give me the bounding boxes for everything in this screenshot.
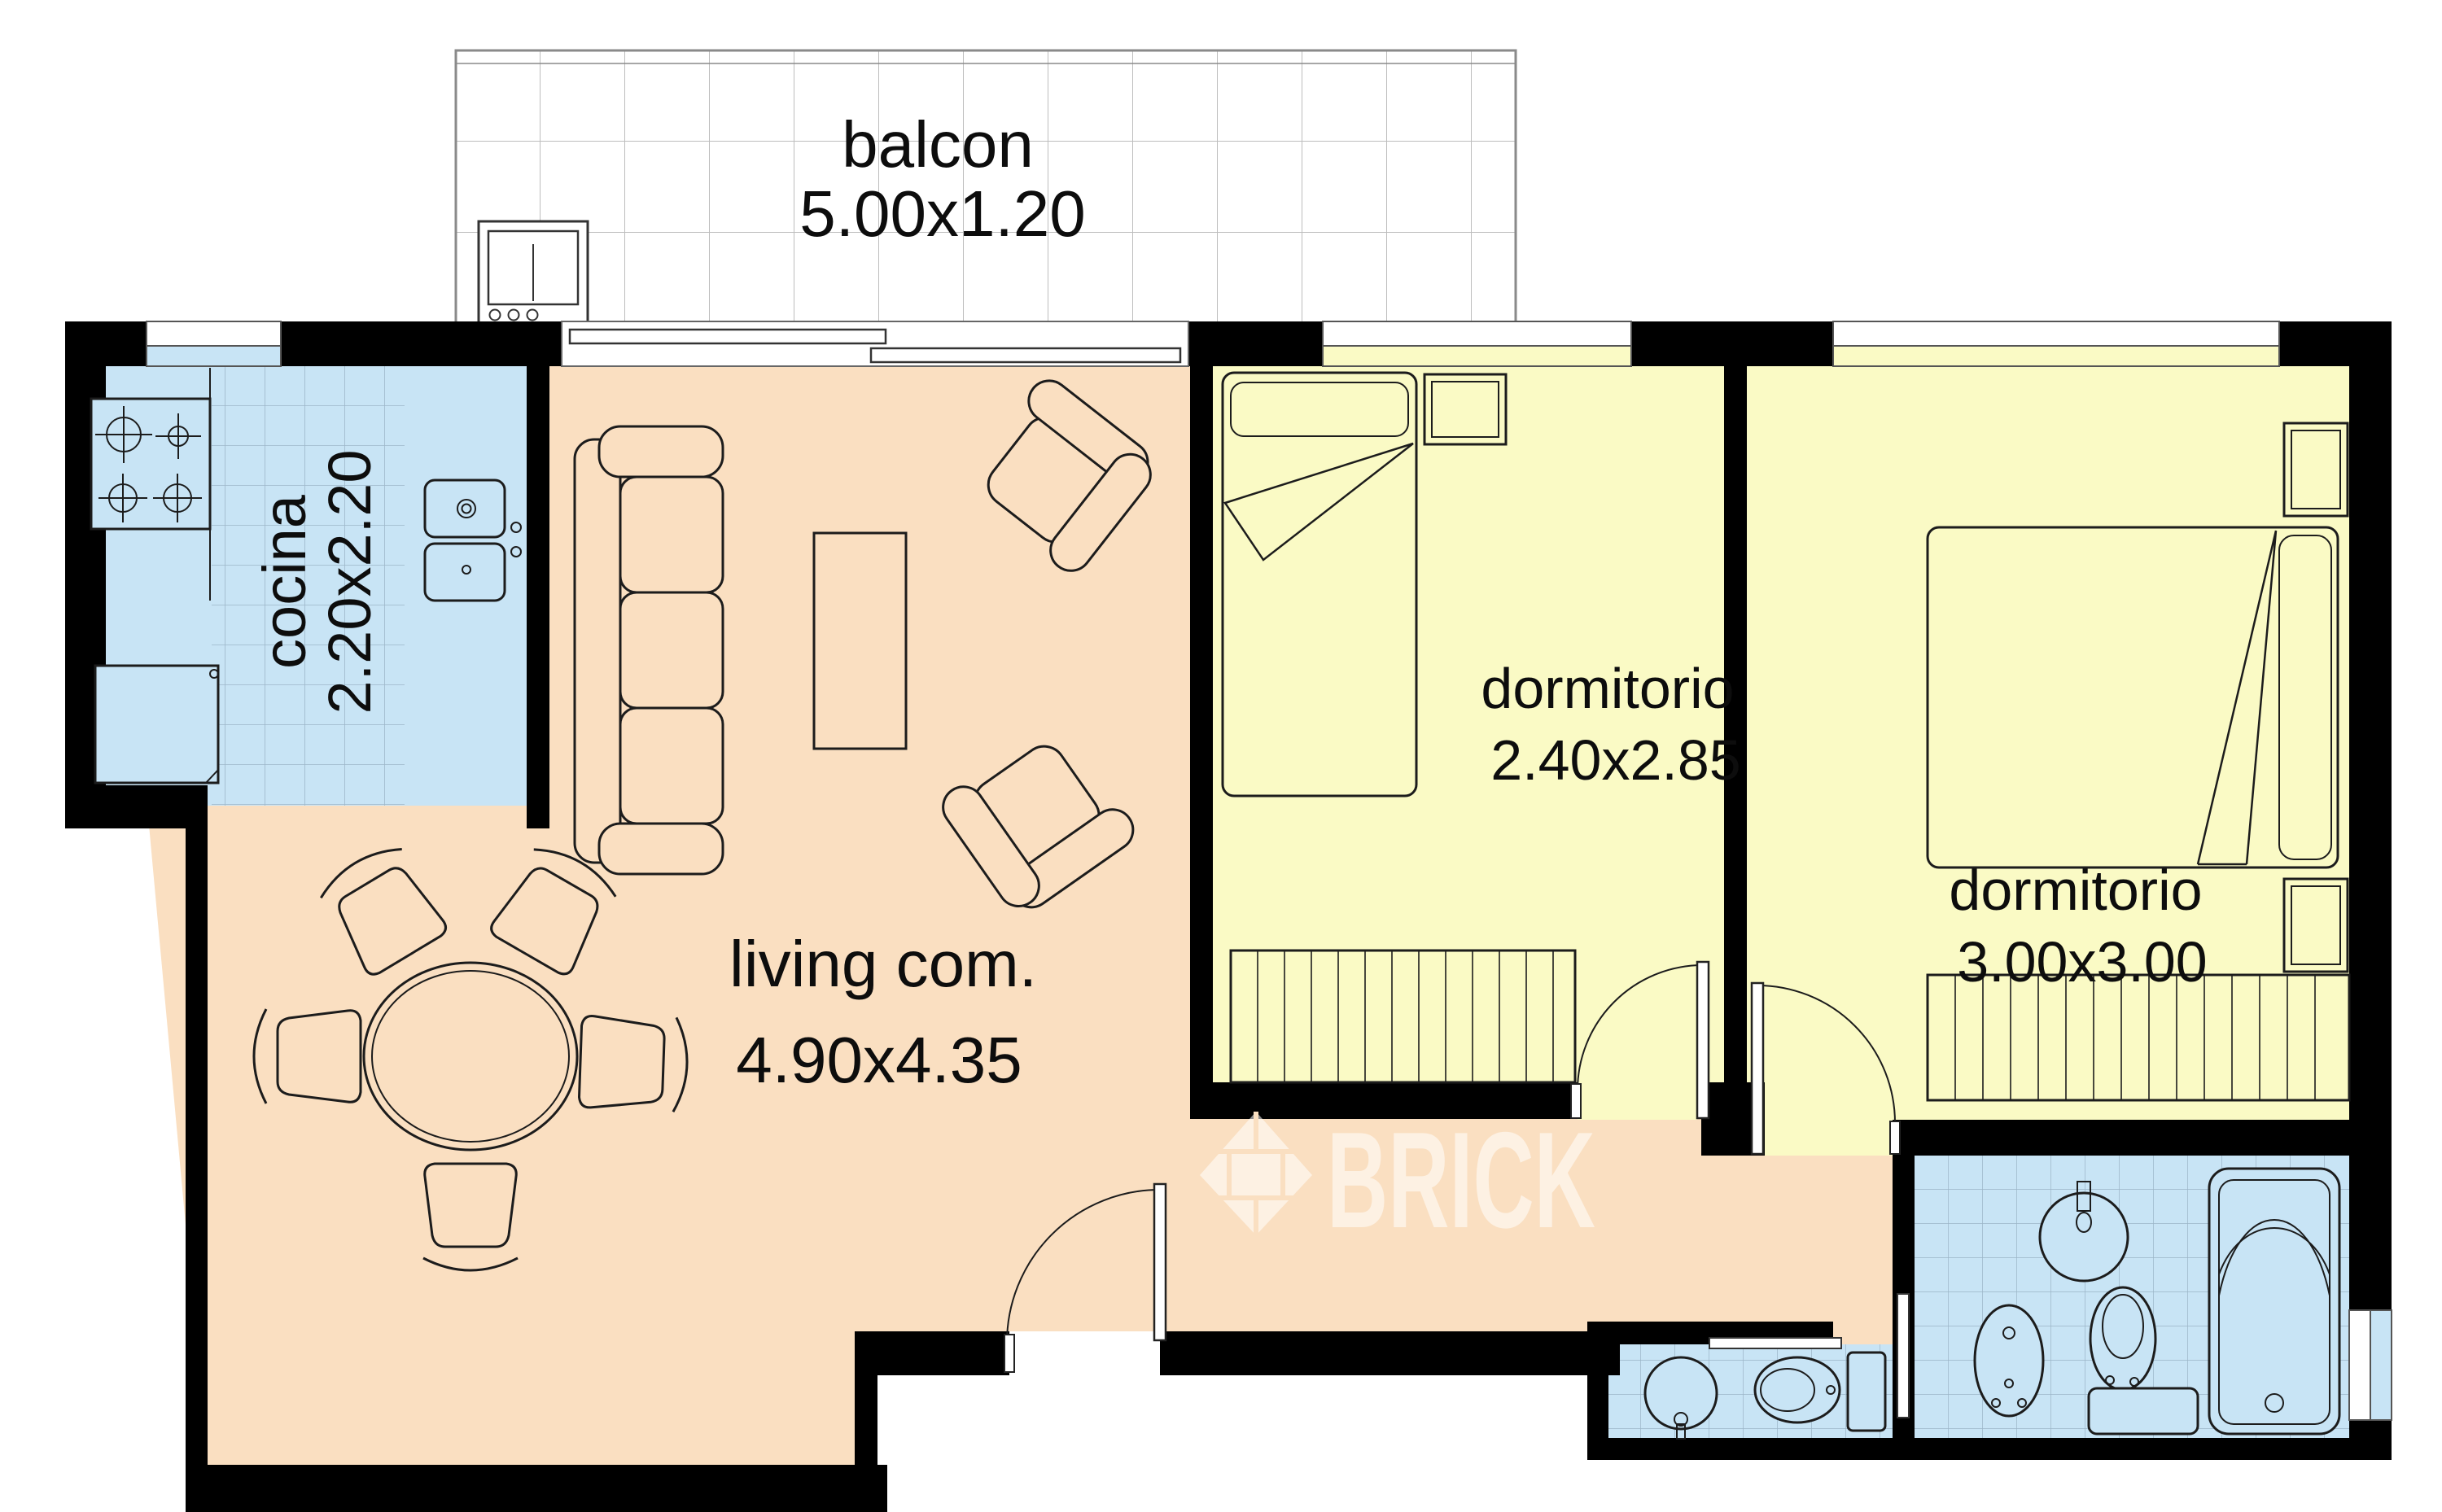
bathroom-sliding-door-icon bbox=[1897, 1294, 1909, 1418]
single-bed-icon bbox=[1223, 373, 1416, 796]
wall-segment bbox=[2349, 321, 2392, 1460]
balcony-label: balcon bbox=[842, 108, 1034, 181]
bedroom1-label: dormitorio bbox=[1481, 657, 1734, 720]
wall-segment bbox=[1190, 366, 1213, 1119]
bathtub-icon bbox=[2209, 1169, 2339, 1434]
wardrobe-icon bbox=[1928, 975, 2349, 1100]
bidet-icon bbox=[1975, 1305, 2043, 1416]
wall-segment bbox=[1893, 1120, 2349, 1156]
toilet-room-sliding-door-icon bbox=[1709, 1338, 1841, 1348]
wall-segment bbox=[1587, 1438, 2392, 1460]
kitchen-dims: 2.20x2.20 bbox=[316, 449, 383, 714]
floor-plan: balcon 5.00x1.20 bbox=[0, 0, 2442, 1512]
kitchen-window-icon bbox=[147, 321, 281, 366]
kitchen-label: cocina bbox=[251, 494, 318, 669]
living-dims: 4.90x4.35 bbox=[736, 1024, 1022, 1096]
living-label: living com. bbox=[729, 928, 1037, 1000]
bedroom1-dims: 2.40x2.85 bbox=[1490, 728, 1740, 792]
balcony-sliding-door-icon bbox=[562, 321, 1188, 366]
wall-segment bbox=[1160, 1331, 1620, 1375]
bedroom2-window-icon bbox=[1833, 321, 2279, 366]
wardrobe-icon bbox=[1231, 950, 1575, 1082]
wall-segment bbox=[877, 1331, 1009, 1375]
fridge-icon bbox=[95, 666, 218, 783]
bedroom1-door-threshold bbox=[1578, 1082, 1697, 1120]
wall-segment bbox=[855, 1331, 877, 1512]
sofa-icon bbox=[575, 426, 723, 874]
entry-opening bbox=[1009, 1331, 1160, 1375]
wall-segment bbox=[527, 366, 549, 828]
stove-icon bbox=[91, 399, 210, 529]
balcony-dims: 5.00x1.20 bbox=[799, 177, 1085, 250]
kitchen-counter-right bbox=[405, 366, 527, 806]
wall-segment bbox=[186, 1465, 887, 1512]
brand-watermark-text: BRICK bbox=[1327, 1103, 1595, 1256]
bedroom2-door-threshold bbox=[1763, 1120, 1895, 1156]
bedroom2-label: dormitorio bbox=[1949, 859, 2202, 922]
bedroom1-window-icon bbox=[1323, 321, 1631, 366]
wall-segment bbox=[186, 785, 208, 1465]
washing-machine-icon bbox=[479, 221, 588, 324]
double-bed-icon bbox=[1928, 527, 2338, 867]
bedroom2-dims: 3.00x3.00 bbox=[1957, 930, 2207, 994]
bathroom-window-icon bbox=[2349, 1310, 2392, 1420]
balcony: balcon 5.00x1.20 bbox=[456, 50, 1516, 324]
